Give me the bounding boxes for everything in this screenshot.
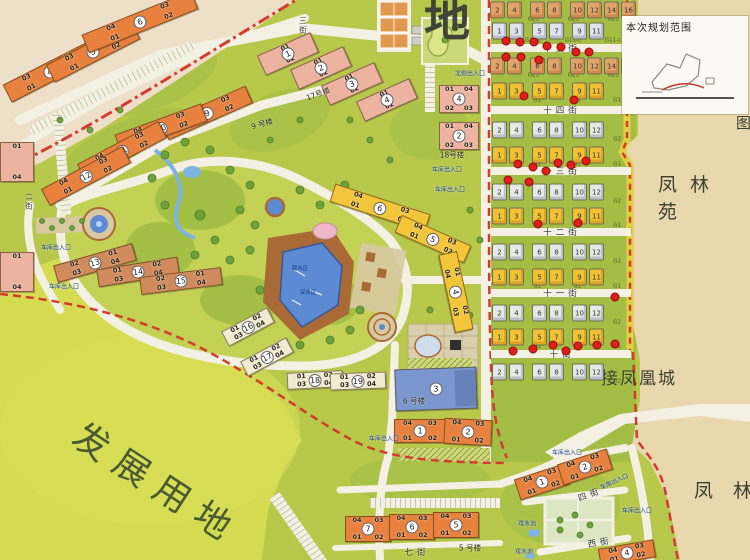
site-plan-map: 地 发展用地 凤林苑 接凤凰城 凤林 图 戏水区 深水区 本次规划范围 十五街十… bbox=[0, 0, 750, 560]
fenglinyuan-label: 凤林苑 bbox=[658, 170, 750, 224]
red-dot-marker bbox=[514, 160, 523, 169]
villa-pair: 68G25 bbox=[530, 2, 562, 19]
villa-house: 10 bbox=[570, 2, 585, 19]
building-7: 040301027 bbox=[345, 516, 391, 542]
villa-house: 2 bbox=[492, 184, 507, 201]
red-dot-marker bbox=[611, 340, 620, 349]
villa-house: 4 bbox=[509, 184, 524, 201]
villa-house: 6 bbox=[532, 122, 547, 139]
villa-house: 4 bbox=[507, 2, 522, 19]
villa-pair: 68 bbox=[532, 305, 564, 322]
building-17: 0102030417 bbox=[240, 337, 294, 376]
villa-house: 9 bbox=[572, 269, 587, 286]
red-dot-marker bbox=[534, 220, 543, 229]
red-dot-marker bbox=[572, 48, 581, 57]
red-dot-marker bbox=[530, 38, 539, 47]
villa-pair: 13G1 bbox=[492, 329, 524, 346]
building-group-label: 5 号楼 bbox=[459, 543, 481, 554]
building-number: 1 bbox=[414, 425, 427, 438]
villa-house: 10 bbox=[572, 244, 587, 261]
villa-type-code: G2 bbox=[613, 320, 621, 326]
red-dot-marker bbox=[509, 347, 518, 356]
villa-house: 5 bbox=[532, 83, 547, 100]
street-label: 二街 bbox=[24, 193, 35, 212]
villa-house: 10 bbox=[572, 122, 587, 139]
villa-pair: 911G1 bbox=[572, 269, 604, 286]
entrance-label: 戏水池 bbox=[518, 519, 536, 528]
villa-house: 5 bbox=[532, 269, 547, 286]
villa-pair: 24 bbox=[492, 364, 524, 381]
red-dot-marker bbox=[574, 342, 583, 351]
red-dot-marker bbox=[554, 159, 563, 168]
villa-type-code: G2 bbox=[613, 379, 621, 385]
villa-house: 10 bbox=[572, 184, 587, 201]
inset-sketch bbox=[622, 34, 748, 116]
villa-house: 4 bbox=[509, 305, 524, 322]
unit-labels-bottom: 04 bbox=[1, 284, 33, 291]
villa-house: 2 bbox=[490, 2, 505, 19]
villa-house: 10 bbox=[572, 364, 587, 381]
villa-house: 11 bbox=[589, 83, 604, 100]
villa-house: 4 bbox=[509, 364, 524, 381]
villa-house: 8 bbox=[549, 305, 564, 322]
villa-house: 4 bbox=[509, 122, 524, 139]
pool-zone-label-2: 深水区 bbox=[300, 288, 317, 296]
villa-house: 7 bbox=[549, 83, 564, 100]
villa-pair: 1012G2 bbox=[572, 122, 604, 139]
building-4: 010204034 bbox=[438, 251, 473, 333]
building-group-label: 18号楼 bbox=[440, 150, 465, 161]
building-6: 040301026 bbox=[82, 0, 199, 53]
villa-house: 10 bbox=[570, 58, 585, 75]
planning-scope-inset: 本次规划范围 bbox=[622, 16, 748, 114]
unit-labels-bottom: 0203 bbox=[440, 105, 478, 112]
building-number: 7 bbox=[362, 523, 375, 536]
villa-pair: 1012G25 bbox=[570, 58, 602, 75]
villa-pair: 24 bbox=[492, 244, 524, 261]
villa-house: 8 bbox=[549, 184, 564, 201]
red-dot-marker bbox=[593, 341, 602, 350]
villa-house: 1 bbox=[492, 208, 507, 225]
building-1: 040301021 bbox=[394, 419, 446, 443]
development-land-label: 发展用地 bbox=[64, 408, 253, 556]
red-dot-marker bbox=[611, 293, 620, 302]
villa-house: 1 bbox=[492, 329, 507, 346]
unit-labels-top: 01 bbox=[1, 253, 33, 260]
building-6: 040301026 bbox=[389, 514, 435, 540]
villa-house: 3 bbox=[509, 208, 524, 225]
street-label: 十四街 bbox=[543, 104, 581, 116]
unit-labels-bottom: 04 bbox=[1, 174, 33, 181]
villa-pair: 1012G2 bbox=[572, 305, 604, 322]
unit-labels-top: 01 bbox=[1, 143, 33, 150]
building-12: 0403010212 bbox=[41, 146, 131, 206]
villa-pair: 1012G2 bbox=[572, 184, 604, 201]
building-2: 010402032 bbox=[439, 122, 479, 150]
villa-house: 5 bbox=[532, 329, 547, 346]
red-dot-marker bbox=[517, 53, 526, 62]
entrance-label: 车库出入口 bbox=[598, 471, 629, 492]
villa-house: 11 bbox=[589, 208, 604, 225]
villa-house: 9 bbox=[572, 23, 587, 40]
red-dot-marker bbox=[542, 167, 551, 176]
villa-house: 5 bbox=[532, 147, 547, 164]
building-2: 040301022 bbox=[443, 418, 492, 446]
villa-house: 7 bbox=[549, 208, 564, 225]
villa-house: 6 bbox=[532, 184, 547, 201]
villa-house: 11 bbox=[589, 147, 604, 164]
villa-type-code: G11-c bbox=[605, 38, 621, 44]
villa-pair: 68 bbox=[532, 122, 564, 139]
villa-type-code: G1 bbox=[613, 284, 621, 290]
building-group-label: 6 号楼 bbox=[403, 396, 425, 407]
red-dot-marker bbox=[529, 345, 538, 354]
villa-house: 14 bbox=[604, 2, 619, 19]
villa-house: 3 bbox=[509, 329, 524, 346]
villa-house: 2 bbox=[492, 305, 507, 322]
building-number: 2 bbox=[453, 130, 466, 143]
villa-house: 14 bbox=[604, 58, 619, 75]
red-dot-marker bbox=[585, 48, 594, 57]
villa-house: 12 bbox=[589, 305, 604, 322]
unit-labels-bottom: 0203 bbox=[440, 142, 478, 149]
villa-house: 6 bbox=[532, 244, 547, 261]
red-dot-marker bbox=[502, 53, 511, 62]
entrance-label: 车库出入口 bbox=[41, 243, 71, 252]
villa-house: 10 bbox=[572, 305, 587, 322]
villa-house: 8 bbox=[549, 244, 564, 261]
villa-pair: 911G11-c bbox=[572, 23, 604, 40]
building-5: 040301025 bbox=[394, 215, 471, 263]
entrance-label: 车库出入口 bbox=[435, 185, 465, 194]
villa-type-code: G2 bbox=[613, 199, 621, 205]
villa-pair: 24 bbox=[492, 184, 524, 201]
villa-pair: 24 bbox=[492, 305, 524, 322]
villa-house: 1 bbox=[492, 147, 507, 164]
villa-house: 6 bbox=[530, 2, 545, 19]
red-dot-marker bbox=[549, 341, 558, 350]
pool-zone-label-1: 戏水区 bbox=[292, 264, 309, 272]
entrance-label: 北侧出入口 bbox=[455, 69, 485, 78]
building-number: 6 bbox=[406, 521, 419, 534]
red-dot-marker bbox=[520, 92, 529, 101]
entrance-label: 车库出入口 bbox=[552, 448, 582, 457]
fenglin-partial-label: 凤林 bbox=[694, 476, 750, 503]
villa-pair: 24 bbox=[492, 122, 524, 139]
villa-pair: 13G1 bbox=[492, 269, 524, 286]
villa-pair: 1012G2 bbox=[572, 244, 604, 261]
villa-house: 2 bbox=[492, 122, 507, 139]
villa-type-code: G1 bbox=[613, 223, 621, 229]
building-4: 010402034 bbox=[439, 85, 479, 113]
red-dot-marker bbox=[567, 161, 576, 170]
villa-house: 3 bbox=[509, 269, 524, 286]
unit-labels-bottom bbox=[397, 408, 477, 411]
villa-house: 4 bbox=[509, 244, 524, 261]
unit-labels-top bbox=[395, 368, 475, 371]
villa-house: 12 bbox=[589, 244, 604, 261]
inset-title: 本次规划范围 bbox=[622, 16, 748, 34]
villa-house: 8 bbox=[547, 58, 562, 75]
red-dot-marker bbox=[529, 163, 538, 172]
villa-house: 12 bbox=[589, 364, 604, 381]
entrance-label: 戏水池 bbox=[515, 547, 533, 556]
red-dot-marker bbox=[504, 176, 513, 185]
entrance-label: 车库出入口 bbox=[369, 434, 399, 443]
villa-house: 1 bbox=[492, 83, 507, 100]
villa-pair: 57G1 bbox=[532, 83, 564, 100]
building-number: 5 bbox=[450, 519, 463, 532]
villa-house: 7 bbox=[549, 269, 564, 286]
villa-house: 8 bbox=[549, 122, 564, 139]
villa-pair: 24G25 bbox=[490, 2, 522, 19]
villa-house: 1 bbox=[492, 269, 507, 286]
villa-house: 6 bbox=[532, 305, 547, 322]
building-block: 0104 bbox=[0, 252, 34, 292]
entrance-label: 车库出入口 bbox=[432, 165, 462, 174]
building-16: 0102030416 bbox=[221, 307, 275, 346]
villa-house: 6 bbox=[532, 364, 547, 381]
street-label: 七街 bbox=[404, 546, 429, 558]
villa-house: 11 bbox=[589, 23, 604, 40]
building-block: 0104 bbox=[0, 142, 34, 182]
red-dot-marker bbox=[525, 178, 534, 187]
villa-pair: 13G1 bbox=[492, 208, 524, 225]
villa-house: 12 bbox=[589, 184, 604, 201]
villa-house: 12 bbox=[589, 122, 604, 139]
villa-pair: 1012G25 bbox=[570, 2, 602, 19]
building-5: 040301025 bbox=[433, 512, 479, 538]
red-dot-marker bbox=[562, 347, 571, 356]
villa-pair: 68 bbox=[532, 184, 564, 201]
red-dot-marker bbox=[570, 96, 579, 105]
villa-house: 12 bbox=[587, 2, 602, 19]
villa-house: 12 bbox=[587, 58, 602, 75]
villa-pair: 57G11-c bbox=[532, 23, 564, 40]
building-number: 3 bbox=[429, 382, 442, 395]
villa-house: 11 bbox=[589, 269, 604, 286]
villa-house: 8 bbox=[549, 364, 564, 381]
entrance-label: 车库出入口 bbox=[622, 506, 652, 515]
villa-type-code: G1 bbox=[613, 162, 621, 168]
map-title-fragment: 地 bbox=[424, 0, 476, 50]
villa-house: 8 bbox=[547, 2, 562, 19]
red-dot-marker bbox=[574, 219, 583, 228]
villa-type-code: G1 bbox=[613, 98, 621, 104]
red-dot-marker bbox=[582, 157, 591, 166]
red-dot-marker bbox=[535, 56, 544, 65]
phoenix-city-connection-label: 接凤凰城 bbox=[601, 364, 677, 389]
red-dot-marker bbox=[557, 43, 566, 52]
villa-pair: 68 bbox=[532, 364, 564, 381]
red-dot-marker bbox=[543, 42, 552, 51]
map-overlay: 地 发展用地 凤林苑 接凤凰城 凤林 图 戏水区 深水区 本次规划范围 十五街十… bbox=[0, 0, 750, 560]
villa-house: 2 bbox=[492, 364, 507, 381]
entrance-label: 车库出入口 bbox=[49, 282, 79, 291]
building-number: 4 bbox=[453, 93, 466, 106]
villa-house: 2 bbox=[492, 244, 507, 261]
building-group-label: 9 号楼 bbox=[250, 116, 274, 132]
building-19: 0102030419 bbox=[330, 372, 387, 391]
villa-house: 7 bbox=[549, 23, 564, 40]
villa-pair: 1012G2 bbox=[572, 364, 604, 381]
villa-type-code: G2 bbox=[613, 137, 621, 143]
red-dot-marker bbox=[516, 38, 525, 47]
villa-pair: 57G1 bbox=[532, 269, 564, 286]
villa-type-code: G2 bbox=[613, 259, 621, 265]
red-dot-marker bbox=[502, 37, 511, 46]
villa-pair: 68 bbox=[532, 244, 564, 261]
